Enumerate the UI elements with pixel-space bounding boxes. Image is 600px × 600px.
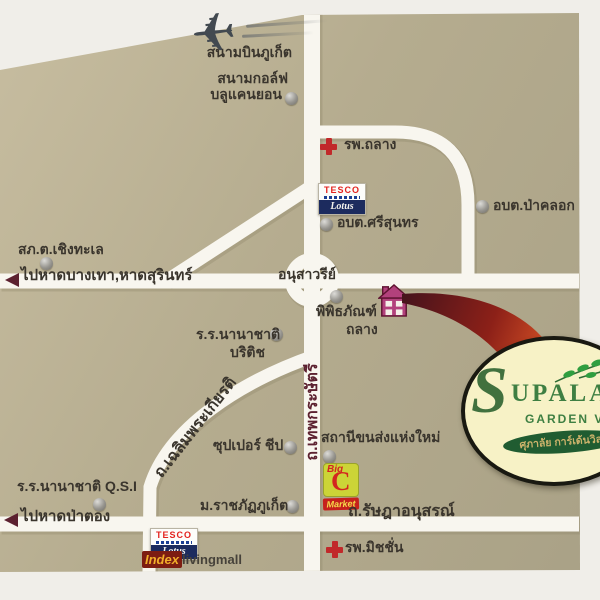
livingmall-wordmark: livingmall xyxy=(182,552,242,567)
index-livingmall-logo: Indexlivingmall xyxy=(142,552,242,567)
tesco-wordmark: TESCO xyxy=(319,184,365,195)
tesco-stripes xyxy=(156,541,192,544)
supalai-thai-banner: ศุภาลัย การ์เด้นวิลล์ xyxy=(502,427,600,457)
supalai-garden-ville: GARDEN VILLE xyxy=(525,412,600,426)
supalai-script-s: S xyxy=(471,356,508,426)
big-c-box: Big C xyxy=(323,463,359,497)
big-c-market: Market xyxy=(323,497,359,510)
index-wordmark: Index xyxy=(142,551,182,568)
route-swoosh-arrow xyxy=(0,0,600,600)
big-c-logo: Big C Market xyxy=(323,463,359,510)
tesco-stripes xyxy=(324,196,360,199)
tesco-lotus-logo: TESCO Lotus xyxy=(318,183,366,215)
big-c-letter: C xyxy=(331,466,351,496)
lotus-wordmark: Lotus xyxy=(319,200,365,214)
supalai-leaves-icon xyxy=(549,348,600,388)
tesco-wordmark: TESCO xyxy=(151,529,197,540)
map-page: { "map": { "icons": { "plane": "✈" }, "r… xyxy=(0,0,600,600)
